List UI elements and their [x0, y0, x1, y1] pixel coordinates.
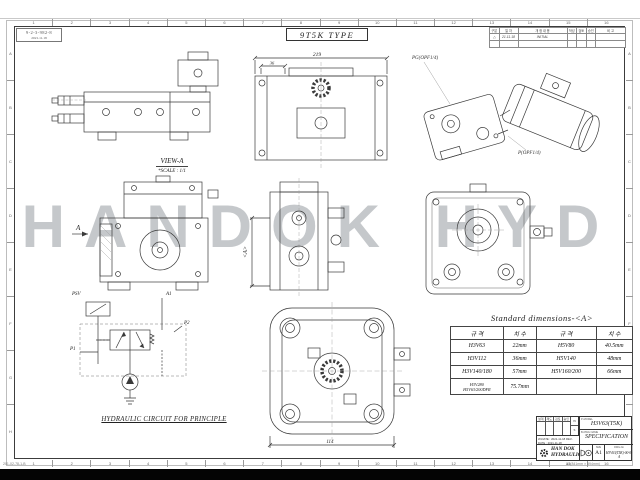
- ruler-number: 9: [321, 460, 359, 467]
- third-angle-projection-icon: [580, 449, 592, 457]
- ruler-letter: D: [626, 189, 633, 243]
- dims-cell: 40.5mm: [596, 340, 632, 353]
- revision-cell: [567, 41, 577, 48]
- dimensions-table-body: 규 격치 수규 격치 수H3V6322mmH5V8040.5mmH3V11236…: [451, 327, 633, 395]
- circuit-p1-label: P1: [69, 347, 76, 352]
- dims-cell: H3V280 H5V63/200DFR: [451, 379, 504, 395]
- dimensions-table: 규 격치 수규 격치 수H3V6322mmH5V8040.5mmH3V11236…: [450, 326, 633, 395]
- dims-cell: 36mm: [503, 353, 536, 366]
- dims-cell: H3V140/180: [451, 366, 504, 379]
- ruler-number: 12: [435, 19, 473, 26]
- scale-cell: N S: [571, 417, 579, 435]
- approval-signature-cell: [563, 422, 572, 435]
- revision-cell: [577, 34, 587, 41]
- approval-signature-cell: [554, 422, 563, 435]
- dims-cell: 57mm: [503, 366, 536, 379]
- ruler-number: 11: [397, 460, 435, 467]
- ruler-number: 11: [397, 19, 435, 26]
- size-value: A1: [593, 450, 604, 456]
- dims-header-cell: 치 수: [596, 327, 632, 340]
- ruler-letter: G: [7, 351, 14, 405]
- ruler-letter: H: [7, 405, 14, 458]
- ruler-number: 13: [473, 460, 511, 467]
- ruler-number: 9: [321, 19, 359, 26]
- ruler-number: 2: [53, 19, 91, 26]
- isometric-view-drawing: [410, 46, 628, 184]
- ruler-number: 8: [282, 19, 320, 26]
- circuit-psv-label: PSV: [71, 292, 82, 297]
- revision-table: 구분일 자개 정 내 용작성검토승인비 고△21.11.18INITIAL: [489, 27, 626, 48]
- front-width-dim: 219: [313, 52, 322, 58]
- dims-cell: H5V160/200: [536, 366, 596, 379]
- ruler-letter: C: [7, 135, 14, 189]
- front-view-drawing: 219 36: [237, 48, 405, 180]
- ruler-number: 7: [244, 460, 282, 467]
- circuit-p2-label: P2: [183, 321, 190, 326]
- stamp-date: 2021.11.18: [17, 36, 61, 40]
- ruler-number: 4: [130, 460, 168, 467]
- port-pg-label: PG(OPF1/4): [412, 56, 438, 61]
- ruler-number: 14: [511, 19, 549, 26]
- top-width-dim: 114: [326, 440, 334, 445]
- ruler-number: 1: [15, 19, 53, 26]
- revision-cell: [577, 41, 587, 48]
- gear-logo-icon: [539, 448, 549, 458]
- scale-denominator: S: [571, 426, 578, 434]
- ruler-letter: A: [7, 27, 14, 81]
- ruler-number: 14: [511, 460, 549, 467]
- ruler-number: 8: [282, 460, 320, 467]
- drawing-number-value: H3V63(T5K)-00-0-A: [605, 451, 633, 459]
- ruler-letter: E: [626, 243, 633, 297]
- ruler-number: 10: [359, 460, 397, 467]
- ruler-number: 6: [206, 460, 244, 467]
- dims-cell: H5V80: [536, 340, 596, 353]
- approval-signature-cell: [537, 422, 546, 435]
- drawing-name-value: SPECIFICATION: [580, 434, 633, 440]
- circuit-caption: HYDRAULIC CIRCUIT FOR PRINCIPLE: [72, 416, 256, 423]
- drawing-sheet: 12345678910111213141516 1234567891011121…: [0, 0, 640, 480]
- revision-cell: [490, 41, 500, 48]
- revision-cell: [596, 41, 626, 48]
- ruler-number: 12: [435, 460, 473, 467]
- approval-signature-cell: [546, 422, 555, 435]
- dims-cell: 48mm: [596, 353, 632, 366]
- paper-size-note: A1(841mm × 594mm): [566, 462, 600, 466]
- revision-cell: [518, 41, 567, 48]
- title-block: 설계제도검토승인 N S W-DATE : 2021-11-18 REV-DAT…: [536, 416, 632, 461]
- dims-cell: H3V63: [451, 340, 504, 353]
- ruler-letter: E: [7, 243, 14, 297]
- projection-cell: [579, 444, 592, 461]
- revision-cell: [567, 34, 577, 41]
- size-label: SIZE: [593, 446, 604, 449]
- ruler-number: 4: [130, 19, 168, 26]
- dims-header-cell: 규 격: [451, 327, 504, 340]
- rear-view-drawing: [414, 182, 560, 306]
- ruler-number: 6: [206, 19, 244, 26]
- ruler-number: 5: [168, 19, 206, 26]
- ruler-number: 3: [91, 460, 129, 467]
- ruler-number: 3: [91, 19, 129, 26]
- model-cell: P-MODEL H3V63(T5K): [579, 417, 633, 430]
- ruler-number: 7: [244, 19, 282, 26]
- dims-cell: H3V112: [451, 353, 504, 366]
- company-name: HAN DOK HYDRAULIC: [551, 447, 579, 458]
- approval-signatures: [537, 422, 571, 435]
- hydraulic-circuit-drawing: PSV A1 P2 P1: [66, 286, 216, 418]
- ruler-number: 15: [550, 19, 588, 26]
- dims-cell: 66mm: [596, 366, 632, 379]
- ruler-left: ABCDEFGH: [7, 27, 14, 458]
- dims-cell: [596, 379, 632, 395]
- revision-cell: △: [490, 34, 500, 41]
- ruler-number: 13: [473, 19, 511, 26]
- ruler-number: 2: [53, 460, 91, 467]
- size-cell: SIZE A1: [592, 444, 604, 461]
- dims-cell: H5V140: [536, 353, 596, 366]
- view-a-label: VIEW-A *SCALE : 1/1: [128, 150, 216, 174]
- stamp-number: 9-2-3-982-8: [17, 29, 61, 36]
- form-number-note: 201-02-78-1-B: [3, 462, 26, 466]
- revision-cell: [499, 41, 518, 48]
- front-left-dim: 36: [270, 61, 275, 66]
- revision-table-body: 구분일 자개 정 내 용작성검토승인비 고△21.11.18INITIAL: [490, 28, 626, 48]
- revision-cell: 21.11.18: [499, 34, 518, 41]
- ruler-bottom: 12345678910111213141516: [15, 460, 625, 467]
- ruler-number: 5: [168, 460, 206, 467]
- dims-header-cell: 규 격: [536, 327, 596, 340]
- model-value: H3V63(T5K): [580, 421, 633, 427]
- company-cell: HAN DOK HYDRAULIC: [537, 444, 579, 461]
- revision-cell: [586, 34, 596, 41]
- ruler-number: 10: [359, 19, 397, 26]
- company-line2: HYDRAULIC: [551, 453, 579, 459]
- drawing-number-label: DWG-No: [605, 446, 633, 449]
- dimensions-table-title: Standard dimensions-<A>: [452, 313, 632, 323]
- view-a-scale: *SCALE : 1/1: [128, 169, 216, 174]
- ruler-top: 12345678910111213141516: [15, 19, 625, 26]
- ruler-letter: F: [7, 297, 14, 351]
- circuit-a1-label: A1: [165, 292, 172, 297]
- approval-stamp: 9-2-3-982-8 2021.11.18: [16, 28, 62, 42]
- view-a-title: VIEW-A: [156, 157, 187, 167]
- date-line: W-DATE : 2021-11-18 REV-DATE : 2021-11-1…: [537, 435, 579, 444]
- view-arrow-a-label: A: [75, 224, 81, 232]
- scale-numerator: N: [571, 417, 578, 426]
- type-title-box: 9T5K TYPE: [286, 28, 368, 41]
- ruler-letter: B: [7, 81, 14, 135]
- drawing-number-cell: DWG-No H3V63(T5K)-00-0-A: [604, 444, 633, 461]
- drawing-name-cell: B-DWG NAME SPECIFICATION: [579, 430, 633, 444]
- port-p-label: P(OPF1/4): [518, 151, 541, 156]
- dims-header-cell: 치 수: [503, 327, 536, 340]
- side-view-drawing: A: [68, 176, 238, 304]
- top-view-drawing: 114: [250, 296, 418, 458]
- dim-a-label: <A>: [243, 246, 249, 258]
- letterbox-bar: [0, 469, 640, 480]
- revision-cell: INITIAL: [518, 34, 567, 41]
- dims-cell: 75.7mm: [503, 379, 536, 395]
- center-view-drawing: <A>: [236, 178, 356, 304]
- ruler-number: 16: [588, 19, 625, 26]
- view-a-drawing: [50, 50, 235, 150]
- revision-cell: [596, 34, 626, 41]
- revision-cell: [586, 41, 596, 48]
- ruler-letter: D: [7, 189, 14, 243]
- dims-cell: 22mm: [503, 340, 536, 353]
- dims-cell: [536, 379, 596, 395]
